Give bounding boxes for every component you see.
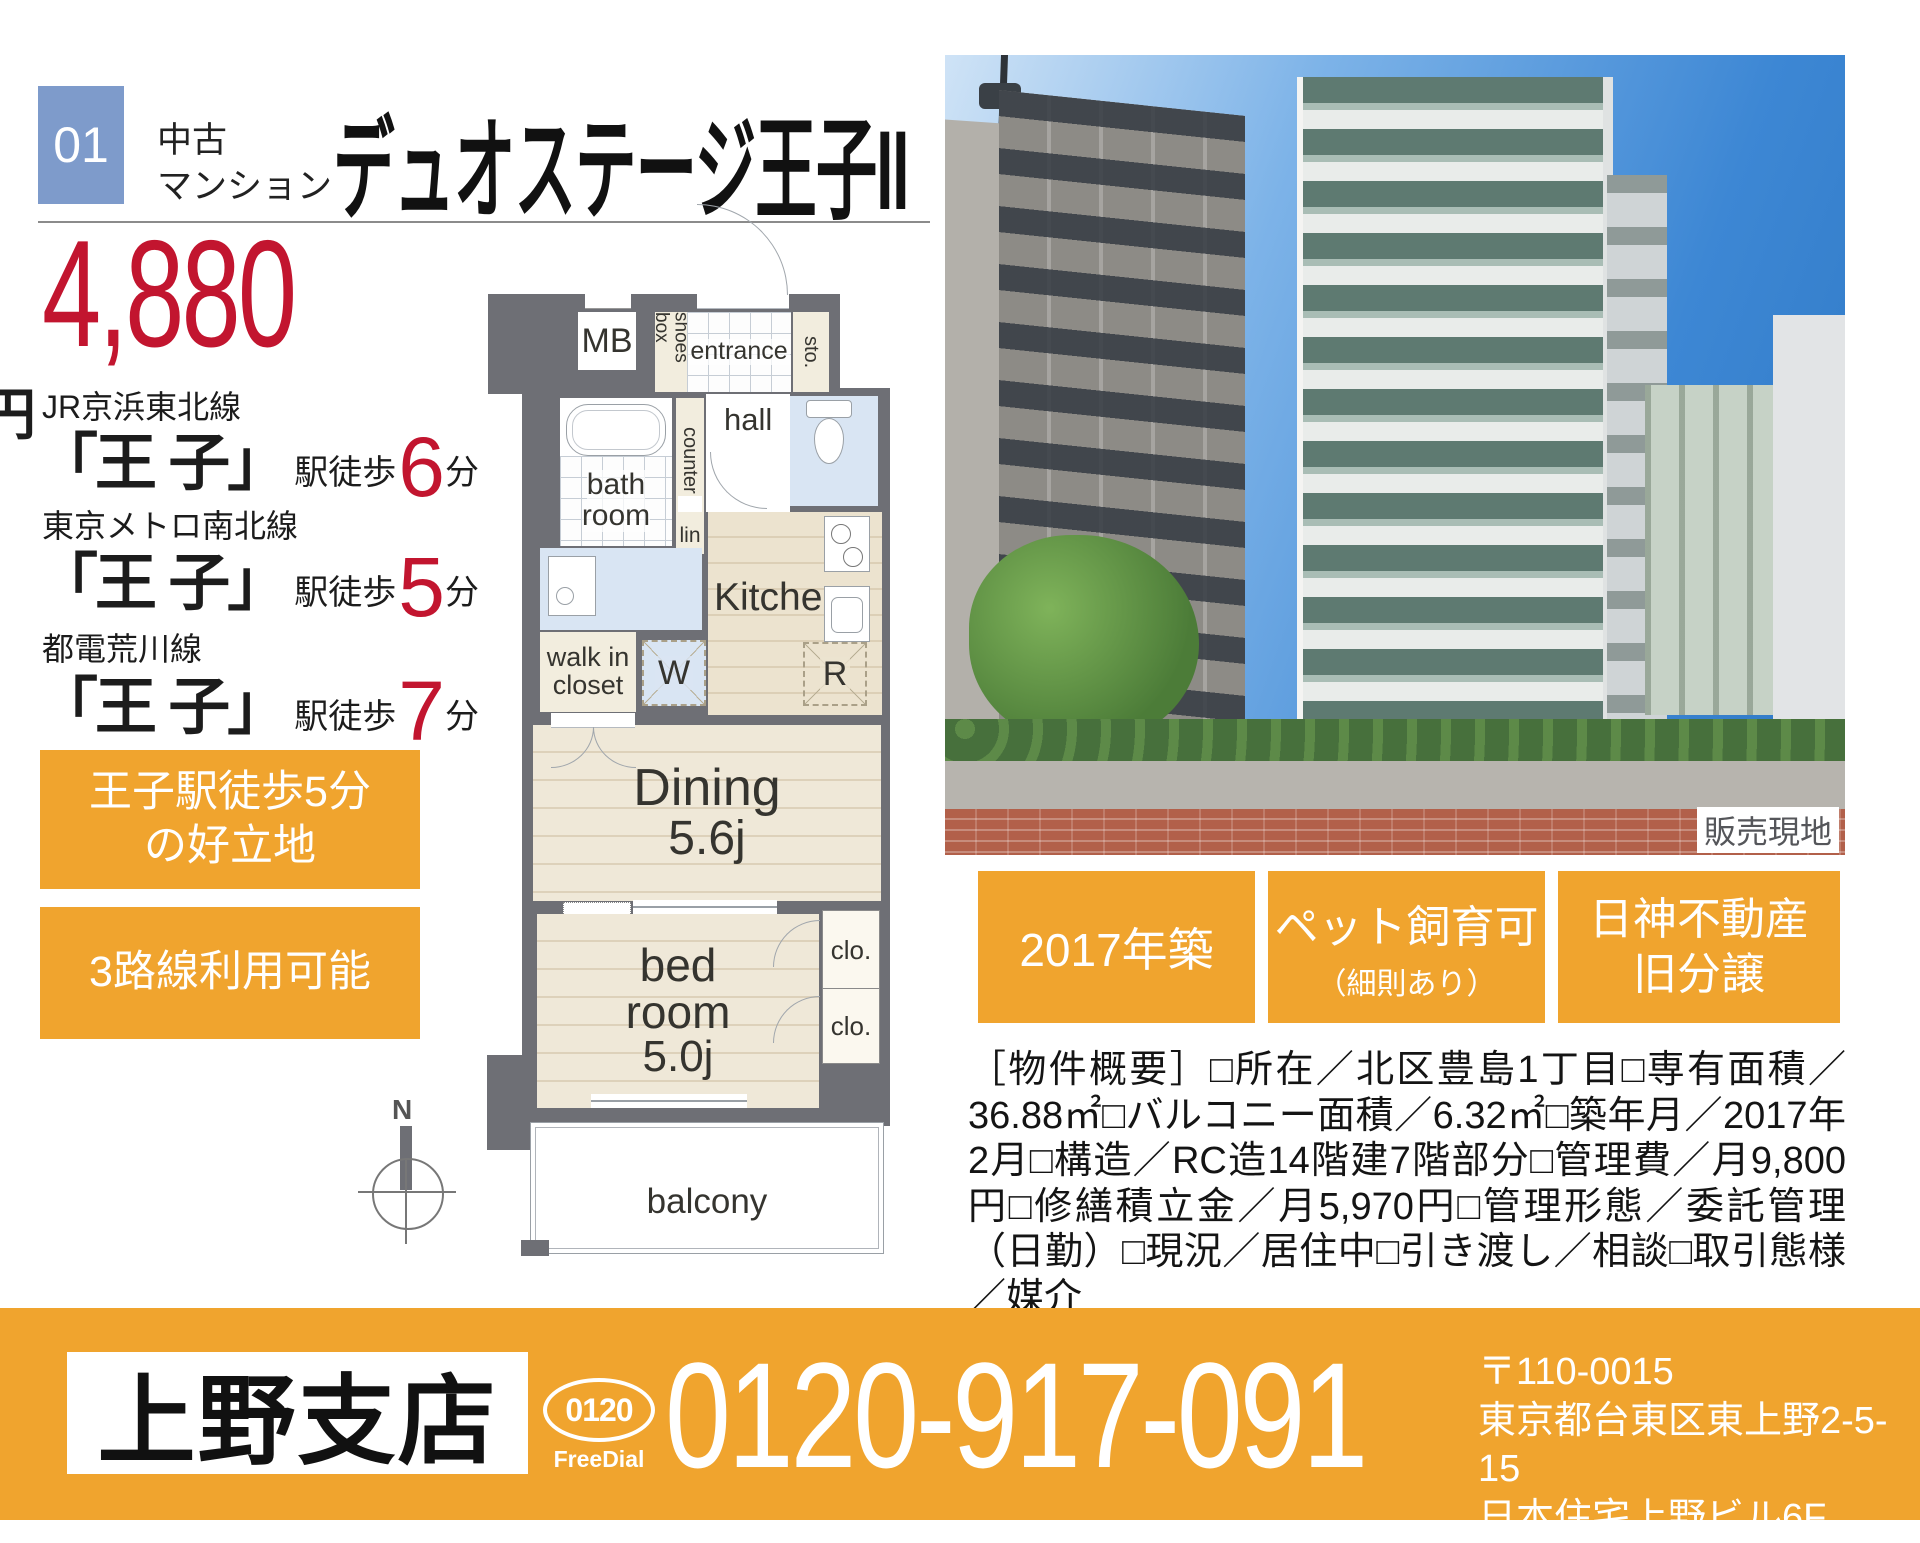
category-label: 中古 マンション <box>157 118 332 210</box>
entrance-opening <box>697 294 789 309</box>
burner <box>843 547 863 567</box>
bathtub-inner <box>572 410 660 450</box>
site-label: 販売現地 <box>1697 807 1839 853</box>
station-row-1: 「王 子」 駅徒歩 6 分 <box>36 412 479 502</box>
meter-box-notch <box>585 294 631 309</box>
bathroom-label-1: bath <box>587 470 645 501</box>
dining-label: Dining <box>633 762 780 815</box>
dining-door-opening <box>551 713 635 728</box>
freedial-logo: 0120 FreeDial <box>543 1378 655 1478</box>
branch-name: 上野支店 <box>97 1342 497 1484</box>
washroom <box>540 548 702 630</box>
bathroom: bath room <box>560 398 672 546</box>
entrance-room: entrance <box>687 312 791 392</box>
bathroom-floor: bath room <box>560 456 672 546</box>
badge-line2: 旧分譲 <box>1633 947 1765 1002</box>
photo-shrubs <box>945 719 1845 765</box>
burner <box>831 524 851 544</box>
closet-2: clo. <box>822 988 880 1064</box>
toilet-room <box>790 396 878 506</box>
station-name: 「王 子」 <box>36 412 286 502</box>
address-line2: 日本住宅上野ビル6F <box>1478 1494 1920 1543</box>
meter-box-label: MB <box>582 324 633 359</box>
index-number: 01 <box>53 116 109 174</box>
hall-door-arc <box>710 452 767 509</box>
floorplan: MB shoes box entrance sto. bath room cou… <box>425 228 890 1278</box>
hall-label: hall <box>724 404 790 436</box>
walkin-label-1: walk in <box>547 644 630 672</box>
bedroom-window <box>591 1094 747 1108</box>
wall-niche <box>678 496 702 512</box>
station-name: 「王 子」 <box>36 656 286 746</box>
fridge-label: R <box>820 657 851 692</box>
footer-bar: 上野支店 0120 FreeDial 0120-917-091 〒110-001… <box>0 1308 1920 1520</box>
property-title: デュオステージ王子II <box>333 80 908 242</box>
property-overview: ［物件概要］□所在／北区豊島1丁目□専有面積／36.88㎡□バルコニー面積／6.… <box>968 1048 1846 1322</box>
walkin-label-2: closet <box>553 672 624 700</box>
walkin-closet: walk in closet <box>540 632 636 712</box>
badge-line1: 2017年築 <box>1019 914 1213 980</box>
flyer-page: 01 中古 マンション デュオステージ王子II 4,880 万円 JR京浜東北線… <box>0 0 1920 1543</box>
highlight-line1: 3路線利用可能 <box>89 946 371 1000</box>
address-line1: 東京都台東区東上野2-5-15 <box>1478 1397 1920 1494</box>
partition-slider <box>633 900 777 914</box>
balcony: balcony <box>530 1122 884 1254</box>
sink-basin <box>831 597 863 633</box>
dining-size: 5.6j <box>668 815 745 864</box>
freedial-number: 0120 <box>565 1392 632 1429</box>
walk-label: 駅徒歩 <box>294 689 396 738</box>
site-label-text: 販売現地 <box>1704 807 1832 853</box>
washer-label: W <box>655 656 693 691</box>
badge-line2: （細則あり） <box>1317 959 1497 1003</box>
station-name: 「王 子」 <box>36 532 286 622</box>
walk-label: 駅徒歩 <box>294 565 396 614</box>
highlight-box-1: 王子駅徒歩5分 の好立地 <box>40 750 420 889</box>
hall: hall <box>706 394 790 512</box>
building-photo: 販売現地 <box>945 55 1845 855</box>
station-row-2: 「王 子」 駅徒歩 5 分 <box>36 532 479 622</box>
bathtub <box>566 404 666 456</box>
kitchen: Kitchen R <box>708 512 882 715</box>
bathroom-label-2: room <box>582 501 650 532</box>
bedroom-size: 5.0j <box>643 1035 714 1080</box>
closet-label: clo. <box>831 937 871 964</box>
bedroom-label-1: bed <box>640 942 717 989</box>
badge-line1: ペット飼育可 <box>1275 891 1539 955</box>
badge-pets: ペット飼育可 （細則あり） <box>1268 871 1545 1023</box>
vanity-sink <box>556 587 574 605</box>
highlight-line1: 王子駅徒歩5分 <box>89 766 371 820</box>
shoes-box: shoes box <box>655 312 687 392</box>
badge-developer: 日神不動産 旧分譲 <box>1558 871 1840 1023</box>
highlight-line2: の好立地 <box>144 820 316 874</box>
badge-line1: 日神不動産 <box>1589 892 1809 947</box>
freedial-label: FreeDial <box>543 1446 655 1473</box>
bedroom: bed room 5.0j <box>537 914 819 1108</box>
phone-number: 0120-917-091 <box>665 1340 1365 1490</box>
price-amount: 4,880 <box>42 218 294 370</box>
station-row-3: 「王 子」 駅徒歩 7 分 <box>36 656 479 746</box>
fridge-space: R <box>803 642 867 706</box>
branch-box: 上野支店 <box>67 1352 528 1474</box>
compass-n-label: N <box>392 1094 412 1126</box>
photo-tree <box>969 535 1199 745</box>
badge-year-built: 2017年築 <box>978 871 1255 1023</box>
photo-right-building-2 <box>1773 315 1845 735</box>
meter-box: MB <box>578 312 636 370</box>
photo-road <box>945 761 1845 813</box>
price-unit: 万円 <box>0 370 36 451</box>
postal-code: 〒110-0015 <box>1478 1348 1920 1397</box>
walk-label: 駅徒歩 <box>294 445 396 494</box>
closet-label: clo. <box>831 1013 871 1040</box>
index-badge: 01 <box>38 86 124 204</box>
category-line2: マンション <box>157 164 332 210</box>
kitchen-sink <box>824 586 870 642</box>
toilet-tank <box>806 400 852 418</box>
closet-1: clo. <box>822 910 880 990</box>
vanity <box>548 556 596 616</box>
washer-space: W <box>642 640 706 706</box>
highlight-box-2: 3路線利用可能 <box>40 907 420 1039</box>
category-line1: 中古 <box>157 118 332 164</box>
storage-room: sto. <box>793 312 829 392</box>
compass-axis-v <box>405 1158 407 1244</box>
footer-address: 〒110-0015 東京都台東区東上野2-5-15 日本住宅上野ビル6F <box>1478 1348 1920 1543</box>
freedial-oval: 0120 <box>543 1378 655 1442</box>
entrance-label: entrance <box>688 339 789 365</box>
bedroom-label-2: room <box>626 989 731 1036</box>
stove <box>824 516 870 572</box>
balcony-label: balcony <box>647 1184 768 1220</box>
toilet-bowl <box>814 418 844 464</box>
balcony-pier <box>521 1240 549 1256</box>
